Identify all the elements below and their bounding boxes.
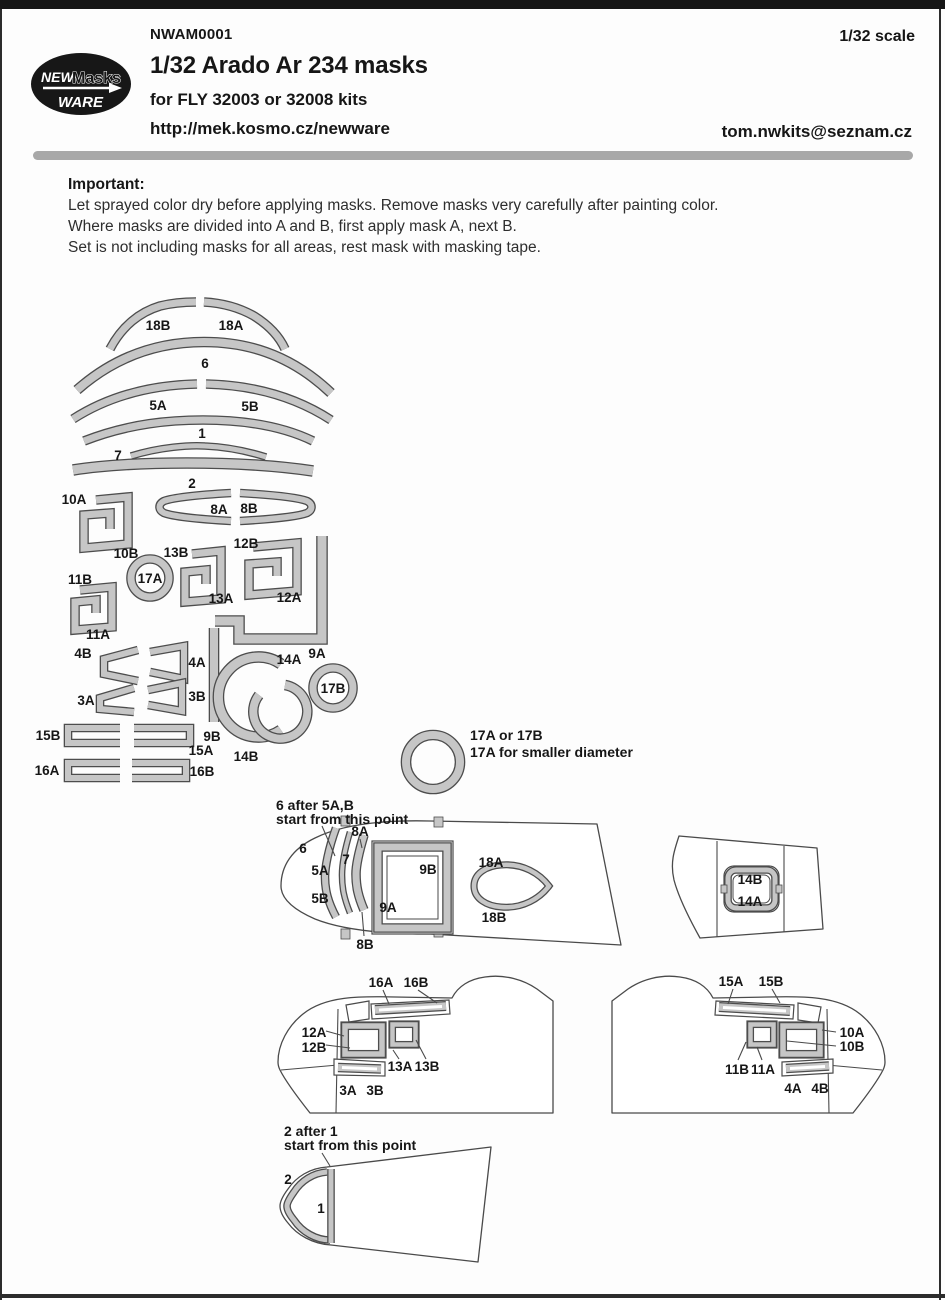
- reference-ring-17: [406, 735, 460, 789]
- frame-tick: [341, 929, 350, 939]
- sheet-label-3A: 3A: [77, 693, 95, 708]
- mask-shape-16A: [68, 763, 120, 778]
- topview-label-6: 6: [299, 841, 307, 856]
- frame-tick: [434, 817, 443, 827]
- sideview-label-4B: 4B: [811, 1081, 829, 1096]
- topview-label-7: 7: [342, 852, 350, 867]
- sheet-label-16A: 16A: [35, 763, 60, 778]
- mask-shape-14A: [218, 657, 281, 737]
- sheet-label-2: 2: [188, 476, 196, 491]
- topview-label-18B: 18B: [482, 910, 507, 925]
- ring-note-line-2: 17A for smaller diameter: [470, 744, 633, 760]
- sheet-label-18A: 18A: [219, 318, 244, 333]
- window-4-slit: [790, 1067, 825, 1069]
- sheet-label-18B: 18B: [146, 318, 171, 333]
- sideview-label-4A: 4A: [784, 1081, 802, 1096]
- ring-note-line-1: 17A or 17B: [470, 727, 543, 743]
- canopy-note-line-2: start from this point: [276, 811, 409, 827]
- sideview-label-15B: 15B: [759, 974, 784, 989]
- nacelle-label-14B: 14B: [738, 872, 763, 887]
- sheet-label-10B: 10B: [114, 546, 139, 561]
- nose-side-view-starboard: 15A 15B 10A 10B 11B 11A 4A 4B: [612, 974, 885, 1113]
- sheet-label-17A: 17A: [138, 571, 163, 586]
- canopy-top-view: 6 after 5A,B start from this point 8A 6 …: [276, 797, 621, 952]
- topview-label-8A: 8A: [351, 824, 369, 839]
- sheet-label-16B: 16B: [190, 764, 215, 779]
- sheet-label-8A: 8A: [210, 502, 228, 517]
- sheet-label-4B: 4B: [74, 646, 92, 661]
- sideview-label-12B: 12B: [302, 1040, 327, 1055]
- sheet-label-13B: 13B: [164, 545, 189, 560]
- bottom-note-leader: [322, 1153, 330, 1166]
- sheet-label-11B: 11B: [68, 572, 92, 587]
- sheet-label-11A: 11A: [86, 627, 110, 642]
- topview-label-5B: 5B: [311, 891, 329, 906]
- topview-label-8B: 8B: [356, 937, 374, 952]
- mask-shape-2: [73, 463, 313, 471]
- topview-label-9A: 9A: [379, 900, 397, 915]
- small-pane: [346, 1001, 369, 1022]
- nose-side-view-port: 16A 16B 12A 12B 13A 13B 3A 3B: [278, 975, 553, 1113]
- sideview-label-13A: 13A: [388, 1059, 413, 1074]
- sheet-label-10A: 10A: [62, 492, 87, 507]
- nacelle-panel-view: 14B 14A: [672, 836, 823, 938]
- sheet-label-12A: 12A: [277, 590, 302, 605]
- mask-shape-15A: [134, 728, 190, 743]
- topview-label-9B: 9B: [419, 862, 437, 877]
- mask-shape-16B: [132, 763, 186, 778]
- sheet-label-13A: 13A: [209, 591, 234, 606]
- mask-shape-15B: [68, 728, 120, 743]
- sheet-label-1: 1: [198, 426, 206, 441]
- sideview-label-10A: 10A: [840, 1025, 865, 1040]
- topview-label-18A: 18A: [479, 855, 504, 870]
- sheet-label-5B: 5B: [241, 399, 259, 414]
- sheet-label-9B: 9B: [203, 729, 221, 744]
- sheet-label-17B: 17B: [321, 681, 346, 696]
- mask-sheet-group: 18B 18A 6 5A 5B 1 7 2 10A 8A 8B 10B 13B …: [35, 302, 634, 789]
- sideview-label-16A: 16A: [369, 975, 394, 990]
- bottom-note-line-2: start from this point: [284, 1137, 417, 1153]
- topview-label-5A: 5A: [311, 863, 329, 878]
- sideview-label-3B: 3B: [366, 1083, 384, 1098]
- sideview-label-15A: 15A: [719, 974, 744, 989]
- window-9-outer: [372, 841, 453, 934]
- sideview-label-11A: 11A: [751, 1062, 775, 1077]
- sheet-label-4A: 4A: [188, 655, 206, 670]
- mask-shape-10: [84, 497, 128, 548]
- nose-bottom-view: 2 after 1 start from this point 2 1: [280, 1123, 491, 1262]
- sheet-label-7: 7: [114, 448, 122, 463]
- sideview-label-13B: 13B: [415, 1059, 440, 1074]
- nose-bottom-outline: [280, 1147, 491, 1262]
- sideview-label-3A: 3A: [339, 1083, 357, 1098]
- sideview-label-10B: 10B: [840, 1039, 865, 1054]
- window-3-slit: [342, 1068, 377, 1070]
- sheet-label-9A: 9A: [308, 646, 326, 661]
- small-pane: [798, 1003, 821, 1023]
- sideview-label-16B: 16B: [404, 975, 429, 990]
- sheet-label-14B: 14B: [234, 749, 259, 764]
- sheet-label-15A: 15A: [189, 743, 214, 758]
- sheet-label-3B: 3B: [188, 689, 206, 704]
- sideview-label-12A: 12A: [302, 1025, 327, 1040]
- mask-shape-9A: [215, 536, 322, 639]
- bottomview-label-2: 2: [284, 1172, 292, 1187]
- sheet-label-12B: 12B: [234, 536, 259, 551]
- sheet-label-15B: 15B: [36, 728, 61, 743]
- bottomview-label-1: 1: [317, 1201, 325, 1216]
- sheet-label-6: 6: [201, 356, 209, 371]
- sheet-label-5A: 5A: [149, 398, 167, 413]
- frame-tick: [721, 885, 727, 893]
- sheet-label-8B: 8B: [240, 501, 258, 516]
- nacelle-label-14A: 14A: [738, 894, 763, 909]
- sideview-label-11B: 11B: [725, 1062, 749, 1077]
- mask-diagram-canvas: 18B 18A 6 5A 5B 1 7 2 10A 8A 8B 10B 13B …: [0, 0, 945, 1300]
- instruction-sheet-page: NEW Masks WARE NWAM0001 1/32 Arado Ar 23…: [0, 0, 945, 1300]
- sheet-label-14A: 14A: [277, 652, 302, 667]
- frame-tick: [776, 885, 782, 893]
